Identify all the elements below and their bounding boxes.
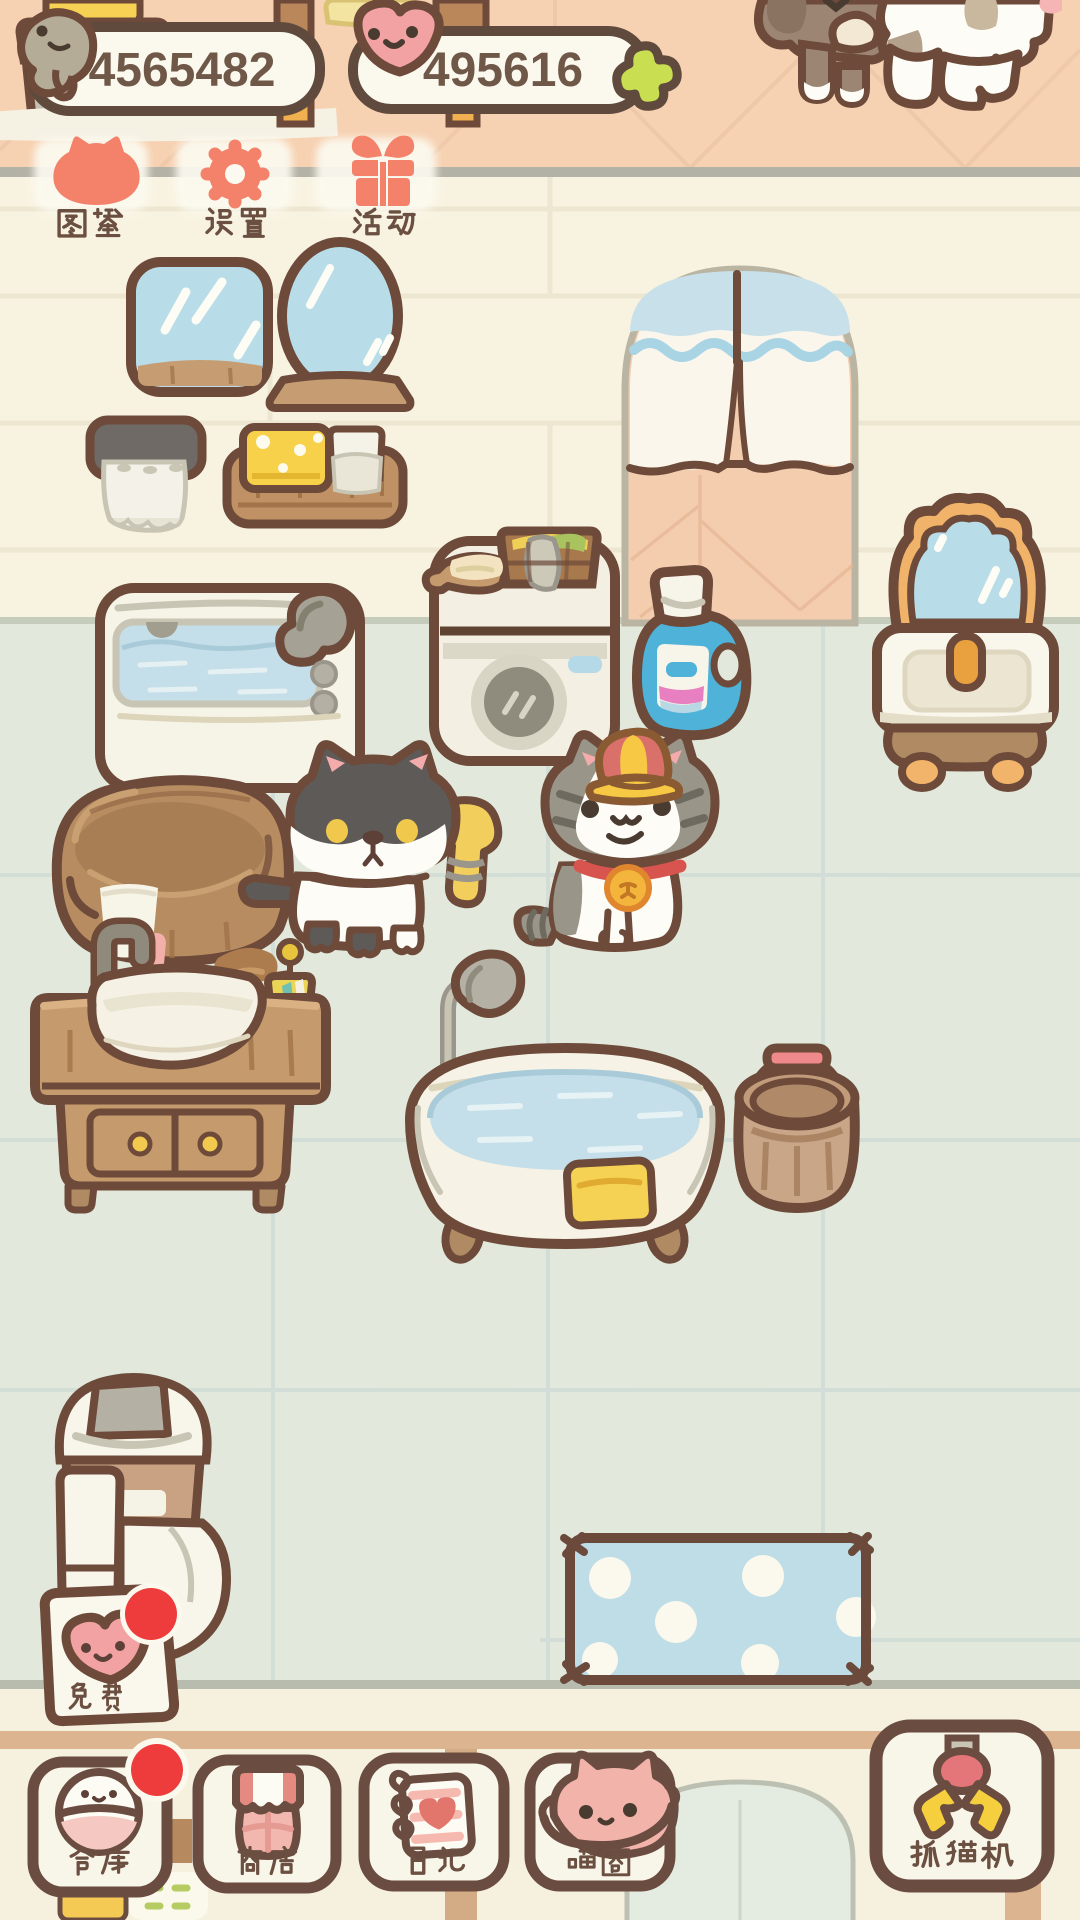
- svg-text:4565482: 4565482: [89, 44, 276, 97]
- svg-text:495616: 495616: [423, 44, 583, 97]
